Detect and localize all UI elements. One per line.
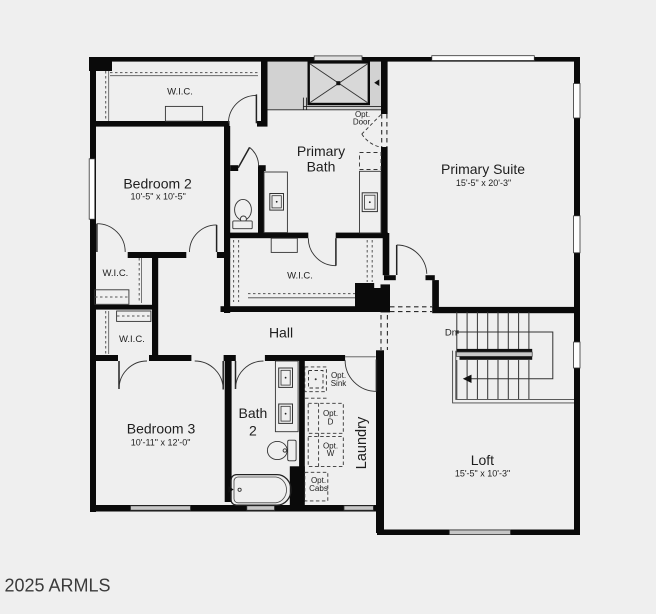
svg-text:W.I.C.: W.I.C. bbox=[102, 268, 128, 279]
svg-text:Bath: Bath bbox=[307, 159, 336, 175]
svg-text:Hall: Hall bbox=[269, 325, 293, 341]
svg-text:D: D bbox=[328, 418, 334, 427]
svg-text:Bath: Bath bbox=[238, 405, 267, 421]
svg-text:W.I.C.: W.I.C. bbox=[167, 86, 193, 97]
svg-text:Bedroom 2: Bedroom 2 bbox=[123, 176, 192, 192]
svg-text:10'-11" x 12'-0": 10'-11" x 12'-0" bbox=[131, 438, 191, 448]
svg-text:Dn: Dn bbox=[445, 327, 457, 338]
svg-text:10'-5" x 10'-5": 10'-5" x 10'-5" bbox=[131, 192, 186, 202]
svg-text:W.I.C.: W.I.C. bbox=[119, 334, 145, 345]
svg-text:2025 ARMLS: 2025 ARMLS bbox=[5, 576, 111, 596]
svg-text:15'-5" x 20'-3": 15'-5" x 20'-3" bbox=[456, 178, 511, 188]
svg-text:Sink: Sink bbox=[331, 379, 348, 388]
svg-text:W.I.C.: W.I.C. bbox=[287, 270, 313, 281]
svg-text:Bedroom 3: Bedroom 3 bbox=[127, 420, 196, 436]
svg-text:Door: Door bbox=[353, 118, 371, 127]
svg-text:Cabs: Cabs bbox=[309, 484, 328, 493]
svg-text:Laundry: Laundry bbox=[354, 416, 370, 469]
svg-text:15'-5" x 10'-3": 15'-5" x 10'-3" bbox=[455, 469, 510, 479]
svg-text:W: W bbox=[327, 449, 335, 458]
svg-text:Primary Suite: Primary Suite bbox=[441, 161, 525, 177]
svg-text:Primary: Primary bbox=[297, 143, 345, 159]
svg-text:2: 2 bbox=[249, 422, 257, 438]
svg-text:Loft: Loft bbox=[471, 452, 494, 468]
